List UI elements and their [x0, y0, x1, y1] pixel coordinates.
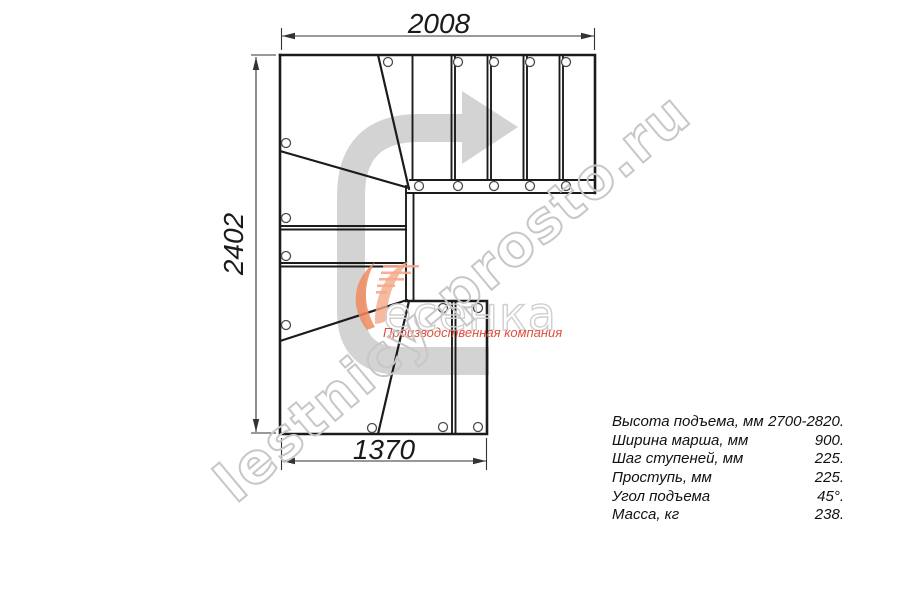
dimension-left-label: 2402: [218, 212, 249, 276]
spec-label: Масса, кг: [612, 506, 679, 525]
spec-table: Высота подъема, мм 2700-2820. Ширина мар…: [612, 413, 844, 525]
dimension-top-label: 2008: [407, 8, 471, 39]
spec-label: Угол подъема: [612, 488, 710, 507]
spec-label: Шаг ступеней, мм: [612, 450, 743, 469]
spec-value: 238.: [815, 506, 844, 525]
dimension-bottom-label: 1370: [353, 434, 416, 465]
spec-label: Проступь, мм: [612, 469, 712, 488]
spec-label: Ширина марша, мм: [612, 432, 748, 451]
spec-value: 225.: [815, 450, 844, 469]
spec-value: 900.: [815, 432, 844, 451]
spec-value: 45°.: [817, 488, 844, 507]
spec-row-height: Высота подъема, мм 2700-2820.: [612, 413, 844, 432]
spec-row-mass: Масса, кг 238.: [612, 506, 844, 525]
spec-row-angle: Угол подъема 45°.: [612, 488, 844, 507]
direction-arrow-head: [462, 91, 518, 164]
spec-row-tread: Проступь, мм 225.: [612, 469, 844, 488]
staircase-drawing-page: 2008 2402 1370 есенка Производственная к…: [0, 0, 900, 600]
spec-row-step-pitch: Шаг ступеней, мм 225.: [612, 450, 844, 469]
spec-value: 2700-2820.: [768, 413, 844, 432]
spec-value: 225.: [815, 469, 844, 488]
spec-label: Высота подъема, мм: [612, 413, 764, 432]
spec-row-flight-width: Ширина марша, мм 900.: [612, 432, 844, 451]
